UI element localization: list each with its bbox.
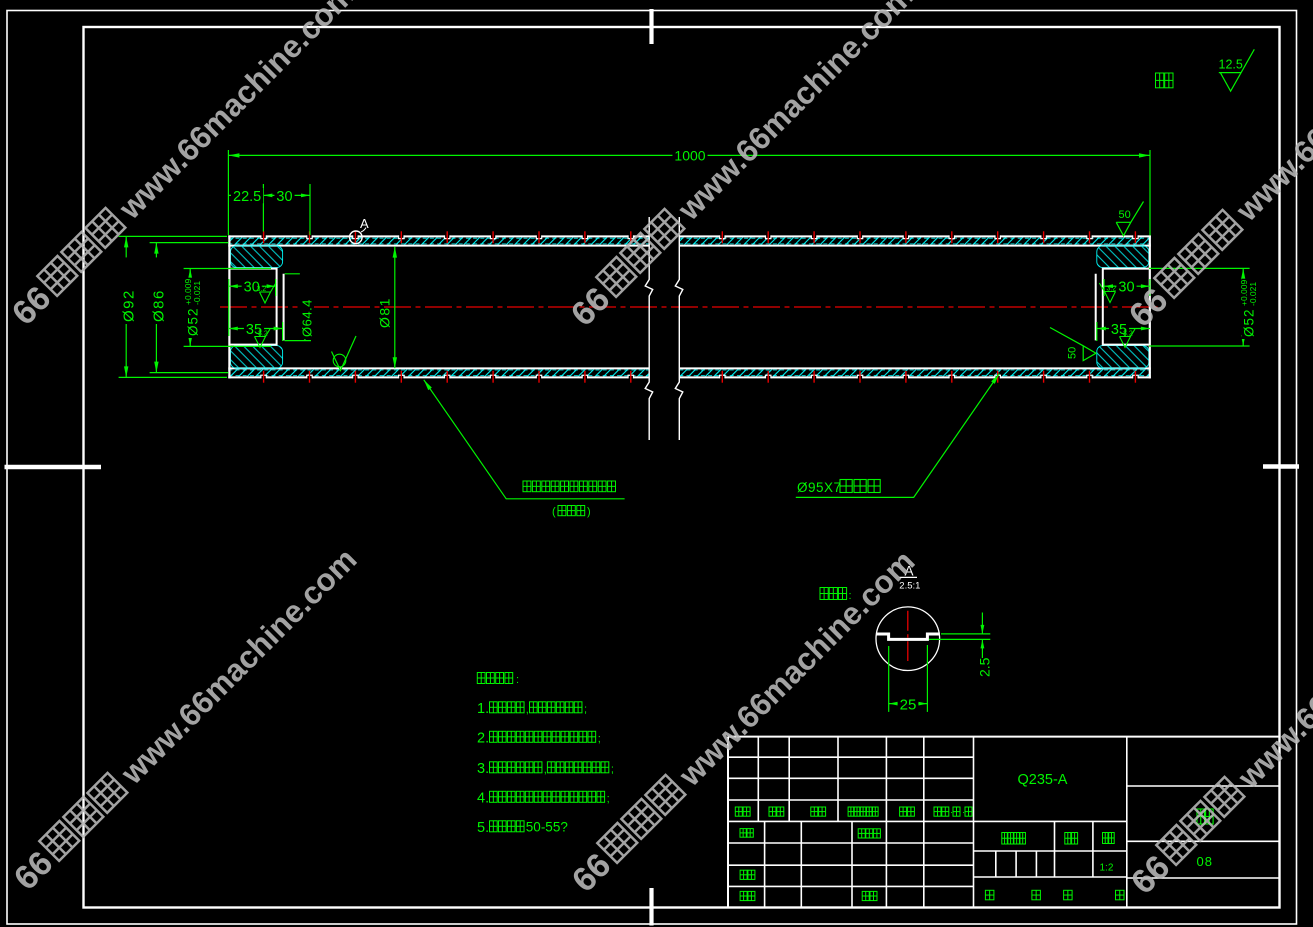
svg-text:): ) (587, 506, 591, 518)
svg-text:3.2: 3.2 (1123, 331, 1133, 338)
svg-text:3.2: 3.2 (257, 286, 267, 293)
svg-text:2.5: 2.5 (977, 657, 993, 677)
svg-text::: : (516, 674, 519, 686)
svg-text:Ø95X7: Ø95X7 (797, 480, 842, 495)
svg-text:08: 08 (1197, 854, 1213, 869)
svg-text:25: 25 (900, 696, 917, 713)
svg-text:Ø92: Ø92 (121, 289, 138, 322)
svg-text:-0.021: -0.021 (1248, 282, 1258, 306)
svg-text:3.: 3. (477, 761, 489, 777)
svg-text:Ø64.4: Ø64.4 (300, 299, 315, 337)
svg-text:Q235-A: Q235-A (1018, 772, 1068, 788)
svg-text:50-55?: 50-55? (526, 819, 568, 834)
svg-text:;: ; (598, 733, 601, 745)
svg-text:30: 30 (1118, 280, 1134, 296)
svg-text:;: ; (607, 793, 610, 805)
svg-text:1.: 1. (477, 701, 489, 717)
svg-text:1000: 1000 (674, 148, 705, 164)
svg-text:2.: 2. (477, 730, 489, 746)
svg-text:3.2: 3.2 (1107, 286, 1117, 293)
svg-text:12.5: 12.5 (1219, 58, 1243, 72)
svg-text:3.2: 3.2 (258, 331, 268, 338)
svg-text:;: ; (584, 703, 587, 715)
svg-text:5.: 5. (477, 820, 489, 836)
svg-text:30: 30 (276, 189, 292, 205)
svg-text:Ø52: Ø52 (1242, 308, 1257, 337)
svg-text:50: 50 (1119, 209, 1131, 221)
svg-text:Ø52: Ø52 (186, 307, 201, 336)
svg-text:A: A (360, 216, 369, 231)
svg-text:Ø86: Ø86 (151, 289, 168, 322)
svg-text:1:2: 1:2 (1100, 863, 1114, 874)
svg-text:4.: 4. (477, 790, 489, 806)
svg-text:22.5: 22.5 (233, 189, 261, 205)
svg-text:;: ; (611, 763, 614, 775)
svg-text:-0.021: -0.021 (192, 281, 202, 305)
svg-text:Ø81: Ø81 (377, 297, 393, 328)
svg-text:,: , (544, 764, 547, 776)
svg-text:50: 50 (1067, 347, 1079, 359)
svg-text:,: , (526, 704, 529, 716)
svg-text:(: ( (552, 506, 556, 518)
